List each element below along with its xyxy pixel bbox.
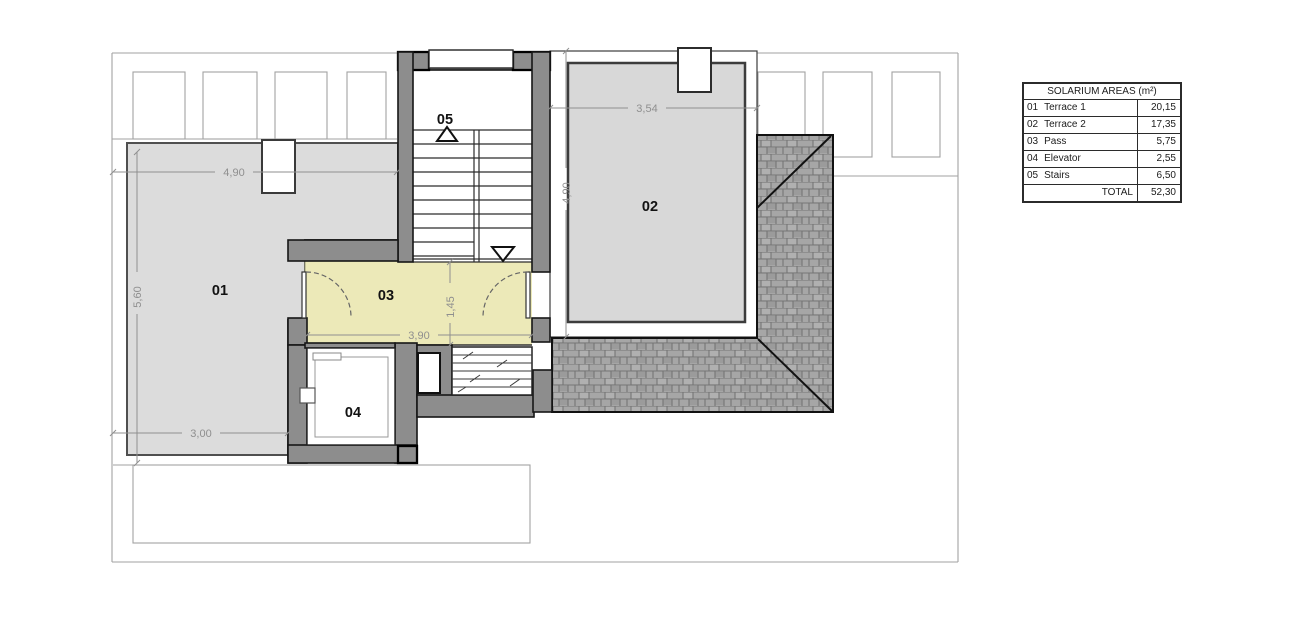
- dim-terrace1-width: 4,90: [223, 167, 244, 179]
- row-label: Elevator: [1044, 153, 1081, 164]
- row-value: 2,55: [1137, 151, 1180, 167]
- total-value: 52,30: [1137, 185, 1180, 201]
- row-value: 20,15: [1137, 100, 1180, 116]
- dim-pass-width: 3,90: [408, 330, 429, 342]
- row-value: 6,50: [1137, 168, 1180, 184]
- table-row: 02Terrace 2 17,35: [1024, 117, 1180, 134]
- room-label-pass: 03: [378, 288, 394, 304]
- table-total-row: TOTAL 52,30: [1024, 185, 1180, 201]
- light-well: [418, 353, 440, 393]
- areas-table-title: SOLARIUM AREAS (m²): [1024, 84, 1180, 100]
- floor-plan-page: 4,90 5,60 3,00 3,90 1,45 3,54: [0, 0, 1290, 620]
- row-number: 02: [1027, 119, 1038, 130]
- table-row: 05Stairs 6,50: [1024, 168, 1180, 185]
- row-number: 04: [1027, 153, 1038, 164]
- room-label-terrace-1: 01: [212, 283, 228, 299]
- dim-terrace2-depth: 4,90: [561, 182, 573, 203]
- dim-pass-depth: 1,45: [445, 296, 457, 317]
- areas-table: SOLARIUM AREAS (m²) 01Terrace 1 20,15 02…: [1022, 82, 1182, 203]
- row-number: 01: [1027, 102, 1038, 113]
- row-label: Pass: [1044, 136, 1066, 147]
- elevator-door-jamb: [300, 388, 315, 403]
- door-leaf-right: [526, 272, 530, 318]
- wood-deck: [452, 347, 532, 395]
- total-label: TOTAL: [1024, 185, 1137, 201]
- terrace-2-area: [550, 48, 757, 337]
- row-label: Terrace 1: [1044, 102, 1086, 113]
- terrace-2-pillar: [678, 48, 711, 92]
- row-label: Terrace 2: [1044, 119, 1086, 130]
- room-label-elevator: 04: [345, 405, 361, 421]
- stair-top-window: [429, 50, 513, 68]
- dim-terrace1-depth: 5,60: [132, 286, 144, 307]
- dim-terrace2-width: 3,54: [636, 103, 657, 115]
- table-row: 01Terrace 1 20,15: [1024, 100, 1180, 117]
- terrace-1-pillar: [262, 140, 295, 193]
- row-number: 03: [1027, 136, 1038, 147]
- row-number: 05: [1027, 170, 1038, 181]
- table-row: 03Pass 5,75: [1024, 134, 1180, 151]
- room-label-terrace-2: 02: [642, 199, 658, 215]
- elevator-shaft: [307, 348, 395, 445]
- table-row: 04Elevator 2,55: [1024, 151, 1180, 168]
- row-value: 17,35: [1137, 117, 1180, 133]
- row-label: Stairs: [1044, 170, 1070, 181]
- row-value: 5,75: [1137, 134, 1180, 150]
- room-label-stairs: 05: [437, 112, 453, 128]
- door-leaf-left: [302, 272, 306, 318]
- elevator-door-panel: [313, 353, 341, 360]
- stairs-area: [413, 70, 532, 262]
- dim-terrace1-bottom-width: 3,00: [190, 428, 211, 440]
